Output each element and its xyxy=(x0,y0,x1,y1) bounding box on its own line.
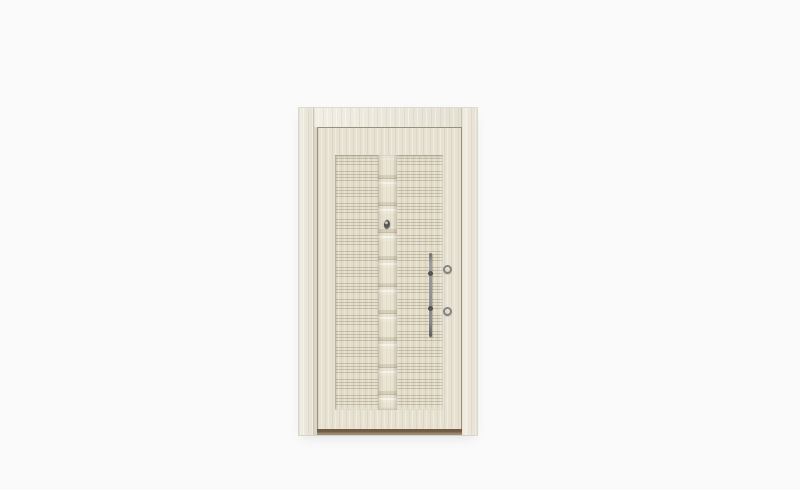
door-product-image xyxy=(299,108,477,435)
handle-standoff-top xyxy=(428,271,433,276)
door-frame-top-board xyxy=(314,108,461,128)
door-leaf xyxy=(317,127,462,435)
product-image-canvas xyxy=(0,0,800,490)
door-center-panel xyxy=(335,155,443,410)
handle-standoff-bottom xyxy=(428,306,433,311)
lock-cylinder-bottom xyxy=(443,307,452,316)
lock-cylinder-top xyxy=(443,265,452,274)
door-threshold xyxy=(317,429,462,434)
pull-handle xyxy=(429,253,432,337)
door-frame-left-board xyxy=(299,108,314,435)
door-frame-right-board xyxy=(461,108,477,435)
center-column-relief xyxy=(378,155,397,410)
